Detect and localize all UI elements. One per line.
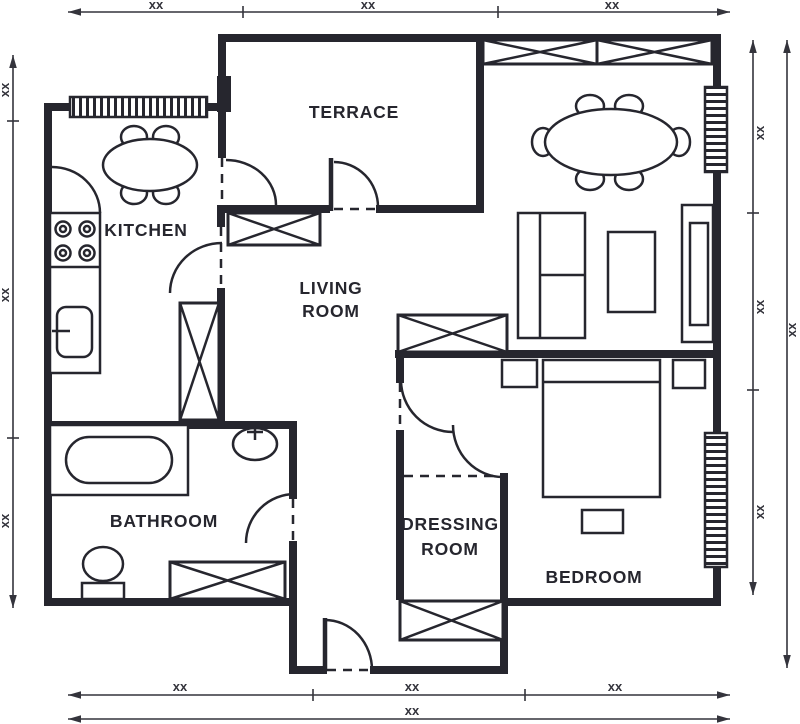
wall-hall-bottom-left — [289, 666, 327, 674]
bedroom-window — [705, 433, 727, 567]
dim-label-top-2: xx — [361, 0, 376, 12]
dimension-bottom-inner: xx xx xx — [68, 679, 730, 701]
kitchen-table-group — [103, 126, 197, 204]
door-arc-kitchen-terrace — [226, 160, 276, 205]
living-room-furniture — [518, 95, 713, 342]
dining-table-group — [532, 95, 690, 190]
bathroom-sink — [233, 425, 277, 460]
wall-hall-right — [500, 473, 508, 674]
bedroom-furniture — [502, 360, 705, 533]
living-room-window — [705, 87, 727, 172]
dim-label-right-inner-3: xx — [752, 504, 767, 519]
closet-living-center — [398, 315, 507, 352]
toilet — [82, 547, 124, 599]
wall-kitchen-right-upper — [217, 205, 225, 227]
wall-hall-left — [289, 598, 297, 674]
closet-kitchen — [180, 303, 219, 420]
tv-console — [682, 205, 713, 342]
dim-label-top-3: xx — [605, 0, 620, 12]
wall-hall-bottom-right — [370, 666, 508, 674]
label-bedroom: BEDROOM — [546, 567, 643, 587]
dim-label-bottom-inner-3: xx — [608, 679, 623, 694]
dim-label-right-outer-1: xx — [784, 322, 799, 337]
bed — [543, 360, 660, 497]
closet-bathroom — [170, 562, 285, 599]
kitchen-furniture — [50, 126, 197, 373]
dim-label-bottom-outer-1: xx — [405, 703, 420, 718]
dimension-right-outer: xx — [783, 40, 799, 668]
closet-living-left — [228, 213, 320, 245]
dim-label-left-1: xx — [0, 82, 12, 97]
wall-bathroom-right-upper — [289, 421, 297, 499]
floor-plan-page: TERRACE KITCHEN LIVING ROOM BATHROOM DRE… — [0, 0, 800, 724]
wall-terrace-bottom-right — [376, 205, 484, 213]
label-terrace: TERRACE — [309, 102, 399, 122]
wall-terrace-left — [218, 34, 226, 158]
dim-label-top-1: xx — [149, 0, 164, 12]
dim-label-left-3: xx — [0, 513, 12, 528]
door-arc-living-terrace — [334, 162, 378, 207]
closet-top-1 — [483, 40, 597, 64]
dim-label-right-inner-1: xx — [752, 125, 767, 140]
label-bathroom: BATHROOM — [110, 511, 218, 531]
sofa — [518, 213, 585, 338]
nightstand-left — [502, 360, 537, 387]
dimension-top: xx xx xx — [68, 0, 730, 18]
dimension-left: xx xx xx — [0, 55, 19, 608]
wall-bathroom-right-lower — [289, 541, 297, 606]
wall-bedroom-left-upper — [396, 350, 404, 383]
dimension-bottom-outer: xx — [68, 703, 730, 723]
label-dressing-room-line1: DRESSING — [401, 514, 499, 534]
door-arc-dressing-room — [453, 425, 503, 477]
bed-bench — [582, 510, 623, 533]
closet-hall — [400, 601, 503, 640]
dimension-right-inner: xx xx xx — [747, 40, 767, 595]
dim-label-bottom-inner-1: xx — [173, 679, 188, 694]
door-arc-kitchen — [170, 243, 222, 293]
floor-plan-drawing: TERRACE KITCHEN LIVING ROOM BATHROOM DRE… — [0, 0, 800, 724]
coffee-table — [608, 232, 655, 312]
nightstand-right — [673, 360, 705, 388]
wall-bedroom-bottom — [500, 598, 721, 606]
door-arc-bedroom — [401, 380, 453, 432]
label-kitchen: KITCHEN — [104, 220, 187, 240]
bathtub — [50, 425, 188, 495]
kitchen-window — [70, 97, 207, 117]
kitchen-counter-corner — [52, 167, 100, 213]
door-arc-bathroom — [246, 494, 295, 543]
dim-label-bottom-inner-2: xx — [405, 679, 420, 694]
label-living-room-line1: LIVING — [299, 278, 362, 298]
label-dressing-room-line2: ROOM — [421, 539, 479, 559]
kitchen-table — [103, 139, 197, 191]
dim-label-left-2: xx — [0, 287, 12, 302]
label-living-room-line2: ROOM — [302, 301, 360, 321]
dining-table — [545, 109, 677, 175]
closet-top-2 — [597, 40, 712, 64]
dim-label-right-inner-2: xx — [752, 299, 767, 314]
door-arc-entry — [325, 620, 372, 670]
